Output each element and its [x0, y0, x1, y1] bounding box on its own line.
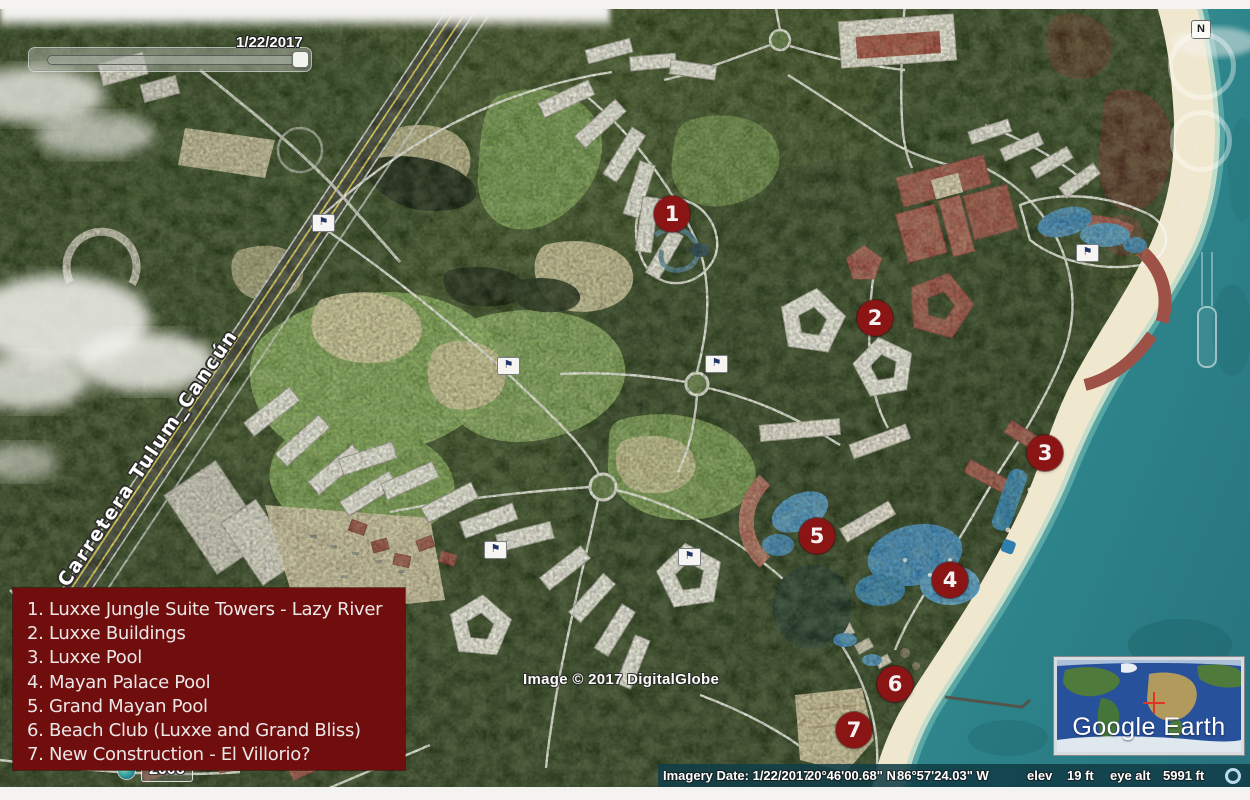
map-marker-3[interactable]: 3 — [1027, 435, 1063, 471]
map-marker-1[interactable]: 1 — [654, 196, 690, 232]
slider-date-label: 1/22/2017 — [236, 34, 303, 51]
map-marker-2[interactable]: 2 — [857, 300, 893, 336]
map-marker-7[interactable]: 7 — [836, 712, 872, 748]
legend-item: 7. New Construction - El Villorio? — [27, 743, 405, 767]
golf-flag-icon[interactable]: ⚑ — [678, 548, 701, 566]
status-bar: Imagery Date: 1/22/2017 20°46'00.68" N 8… — [658, 764, 1250, 787]
status-eye-alt-label: eye alt — [1110, 768, 1150, 783]
slider-handle[interactable] — [292, 51, 309, 68]
google-earth-logo: Google Earth — [1054, 657, 1244, 755]
imagery-copyright: Image © 2017 DigitalGlobe — [523, 671, 719, 688]
golf-flag-icon[interactable]: ⚑ — [705, 355, 728, 373]
golf-flag-icon[interactable]: ⚑ — [484, 541, 507, 559]
legend-item: 6. Beach Club (Luxxe and Grand Bliss) — [27, 719, 405, 743]
streaming-progress-icon — [1225, 768, 1241, 784]
legend-item: 5. Grand Mayan Pool — [27, 695, 405, 719]
legend-item: 1. Luxxe Jungle Suite Towers - Lazy Rive… — [27, 598, 405, 622]
legend-panel: 1. Luxxe Jungle Suite Towers - Lazy Rive… — [13, 588, 405, 770]
golf-flag-icon[interactable]: ⚑ — [1076, 244, 1099, 262]
slider-track[interactable] — [47, 55, 305, 65]
legend-item: 4. Mayan Palace Pool — [27, 671, 405, 695]
zoom-slider-handle[interactable] — [1197, 306, 1217, 368]
status-longitude: 86°57'24.03" W — [897, 768, 989, 783]
golf-flag-icon[interactable]: ⚑ — [497, 357, 520, 375]
capture-edge-top — [0, 0, 1250, 9]
move-joystick[interactable] — [1170, 110, 1232, 172]
look-joystick[interactable] — [1168, 32, 1236, 100]
legend-item: 2. Luxxe Buildings — [27, 622, 405, 646]
legend-item: 3. Luxxe Pool — [27, 646, 405, 670]
map-marker-6[interactable]: 6 — [877, 666, 913, 702]
logo-crosshair-icon — [1143, 692, 1165, 714]
status-elev-label: elev — [1027, 768, 1052, 783]
status-elevation: 19 ft — [1067, 768, 1094, 783]
status-eye-altitude: 5991 ft — [1163, 768, 1204, 783]
google-earth-window: 1/22/2017 N 1 2 3 4 5 6 7 ⚑ ⚑ ⚑ ⚑ ⚑ ⚑ Ca… — [0, 0, 1250, 800]
map-marker-4[interactable]: 4 — [932, 562, 968, 598]
logo-wordmark: Google Earth — [1057, 713, 1241, 742]
capture-edge-bottom — [0, 787, 1250, 800]
zoom-slider-track[interactable] — [1201, 252, 1213, 306]
status-imagery-date: Imagery Date: 1/22/2017 — [663, 768, 810, 783]
map-marker-5[interactable]: 5 — [799, 518, 835, 554]
golf-flag-icon[interactable]: ⚑ — [312, 214, 335, 232]
status-latitude: 20°46'00.68" N — [807, 768, 896, 783]
